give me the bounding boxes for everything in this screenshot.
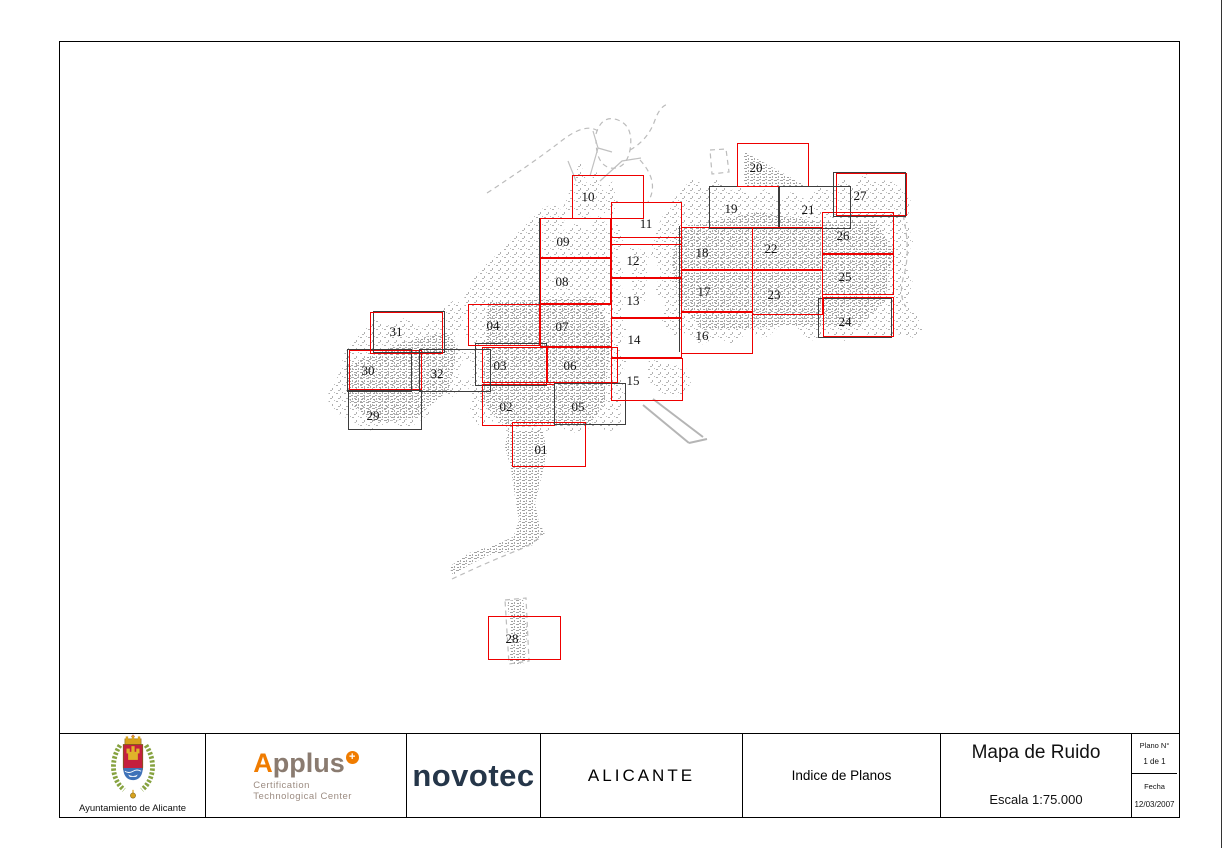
sheet-rect-25 xyxy=(822,254,894,295)
municipality-cell: Ayuntamiento de Alicante xyxy=(60,734,206,817)
sheet-rect-30 xyxy=(347,349,412,392)
sheet-rect-07 xyxy=(540,304,612,347)
sheet-rect-15 xyxy=(611,358,683,401)
fecha-value: 12/03/2007 xyxy=(1134,800,1174,809)
title-block: Ayuntamiento de Alicante Applus+ Certifi… xyxy=(59,733,1180,818)
sheet-rect-31 xyxy=(370,312,443,354)
coat-of-arms-icon xyxy=(105,734,161,802)
sheet-rect-20 xyxy=(737,143,809,187)
sheet-label-15: 15 xyxy=(627,373,640,389)
sheet-rect-26 xyxy=(822,212,894,254)
sheet-rect-27 xyxy=(833,172,906,217)
sheet-index-cell: Indice de Planos xyxy=(743,734,941,817)
sheet-label-16: 16 xyxy=(696,328,709,344)
city-name: ALICANTE xyxy=(588,766,695,786)
map-title-cell: Mapa de Ruido Escala 1:75.000 xyxy=(941,734,1132,817)
novotec-logo-cell: novotec xyxy=(407,734,541,817)
sheet-rect-13 xyxy=(611,278,682,318)
applus-subline-2: Technological Center xyxy=(253,791,359,802)
plano-number-value: 1 de 1 xyxy=(1143,757,1165,766)
plano-number-box: Plano N° 1 de 1 xyxy=(1132,734,1177,774)
drawing-frame xyxy=(59,41,1180,818)
sheet-label-31: 31 xyxy=(390,324,403,340)
map-scale: Escala 1:75.000 xyxy=(989,792,1082,807)
sheet-label-23: 23 xyxy=(768,287,781,303)
sheet-label-19: 19 xyxy=(725,201,738,217)
sheet-label-12: 12 xyxy=(627,253,640,269)
sheet-rect-28 xyxy=(488,616,561,660)
sheet-rect-29 xyxy=(348,390,422,430)
sheet-label-11: 11 xyxy=(640,216,653,232)
fecha-label: Fecha xyxy=(1144,782,1165,791)
applus-brand-initial: A xyxy=(253,748,273,778)
sheet-label-07: 07 xyxy=(556,319,569,335)
sheet-label-03: 03 xyxy=(494,358,507,374)
applus-subline-1: Certification xyxy=(253,780,359,791)
sheet-label-05: 05 xyxy=(572,399,585,415)
applus-logo-cell: Applus+ Certification Technological Cent… xyxy=(206,734,407,817)
sheet-rect-08 xyxy=(540,258,611,304)
sheet-label-32: 32 xyxy=(431,366,444,382)
sheet-label-17: 17 xyxy=(698,284,711,300)
sheet-label-02: 02 xyxy=(500,399,513,415)
sheet-rect-24 xyxy=(823,297,894,337)
sheet-label-09: 09 xyxy=(557,234,570,250)
sheet-label-06: 06 xyxy=(564,358,577,374)
sheet-rect-22 xyxy=(752,227,823,270)
sheet-label-01: 01 xyxy=(535,442,548,458)
sheet-label-20: 20 xyxy=(750,160,763,176)
sheet-label-10: 10 xyxy=(582,189,595,205)
sheet-label-24: 24 xyxy=(839,314,852,330)
sheet-label-28: 28 xyxy=(506,631,519,647)
sheet-label-25: 25 xyxy=(839,269,852,285)
sheet-number-date-cell: Plano N° 1 de 1 Fecha 12/03/2007 xyxy=(1132,734,1177,817)
fecha-box: Fecha 12/03/2007 xyxy=(1132,774,1177,817)
plan-index-page: 0102030405060708091011121314151617181920… xyxy=(0,0,1224,848)
sheet-label-29: 29 xyxy=(367,408,380,424)
sheet-rect-03 xyxy=(482,347,547,383)
sheet-label-22: 22 xyxy=(765,241,778,257)
sheet-rect-18 xyxy=(681,227,753,270)
sheet-label-14: 14 xyxy=(628,332,641,348)
applus-logo: Applus+ Certification Technological Cent… xyxy=(253,750,359,802)
city-cell: ALICANTE xyxy=(541,734,743,817)
sheet-rect-04 xyxy=(468,304,540,346)
sheet-label-04: 04 xyxy=(487,318,500,334)
sheet-label-26: 26 xyxy=(837,228,850,244)
sheet-label-18: 18 xyxy=(696,245,709,261)
sheet-label-08: 08 xyxy=(556,274,569,290)
sheet-rect-17 xyxy=(681,270,753,312)
sheet-rect-16 xyxy=(681,312,753,354)
sheet-label-30: 30 xyxy=(362,363,375,379)
sheet-rect-19 xyxy=(709,186,779,229)
sheet-rect-02 xyxy=(482,384,555,426)
page-right-border xyxy=(1221,0,1222,848)
plano-number-label: Plano N° xyxy=(1140,741,1170,750)
sheet-index-label: Indice de Planos xyxy=(792,768,892,783)
sheet-label-27: 27 xyxy=(854,188,867,204)
sheet-rect-09 xyxy=(540,218,611,258)
map-title: Mapa de Ruido xyxy=(972,742,1101,764)
applus-brand-rest: pplus xyxy=(273,748,345,778)
municipality-caption: Ayuntamiento de Alicante xyxy=(79,803,186,814)
sheet-label-13: 13 xyxy=(627,293,640,309)
sheet-rect-01 xyxy=(512,422,586,467)
sheet-rect-23 xyxy=(752,270,823,315)
applus-badge-icon: + xyxy=(346,751,359,764)
novotec-logo: novotec xyxy=(412,758,534,794)
sheet-rect-12 xyxy=(611,237,682,278)
sheet-label-21: 21 xyxy=(802,202,815,218)
sheet-rect-06 xyxy=(547,347,618,383)
sheet-rect-14 xyxy=(611,318,682,358)
